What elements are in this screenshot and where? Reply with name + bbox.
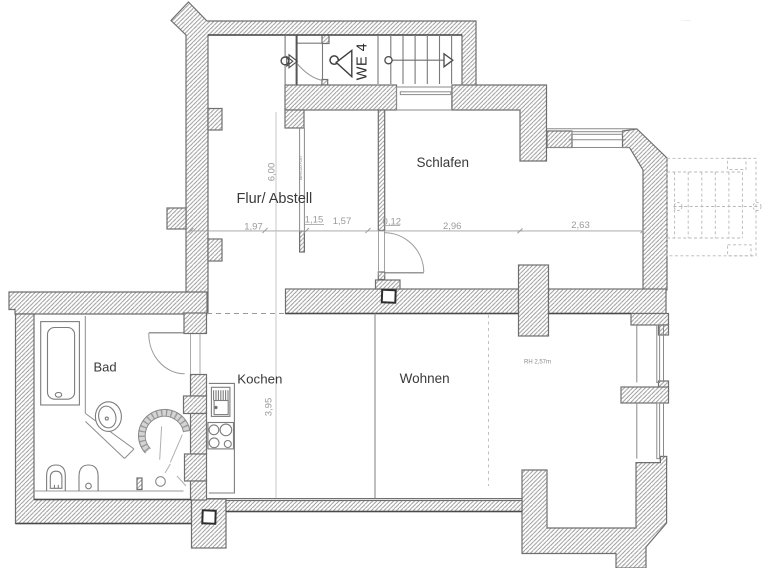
svg-text:WE 4: WE 4 bbox=[355, 43, 371, 80]
svg-text:··―·: ··―· bbox=[680, 18, 692, 24]
svg-text:Bad: Bad bbox=[94, 360, 117, 375]
svg-text:3,95: 3,95 bbox=[264, 398, 275, 417]
svg-text:1,57: 1,57 bbox=[333, 216, 352, 227]
svg-text:Kochen: Kochen bbox=[237, 372, 282, 387]
svg-text:Wohnen: Wohnen bbox=[400, 371, 450, 386]
svg-text:BH=107cm: BH=107cm bbox=[298, 156, 304, 180]
svg-text:1,15: 1,15 bbox=[305, 215, 324, 226]
svg-text:2,63: 2,63 bbox=[571, 220, 590, 231]
svg-text:0,12: 0,12 bbox=[383, 217, 402, 228]
svg-text:Flur/ Abstell: Flur/ Abstell bbox=[237, 191, 313, 207]
svg-text:2,96: 2,96 bbox=[443, 221, 462, 232]
svg-text:6,00: 6,00 bbox=[267, 163, 278, 182]
svg-text:RH 2,57m: RH 2,57m bbox=[524, 360, 551, 366]
svg-text:1,97: 1,97 bbox=[244, 222, 263, 233]
svg-text:Schlafen: Schlafen bbox=[417, 155, 470, 170]
